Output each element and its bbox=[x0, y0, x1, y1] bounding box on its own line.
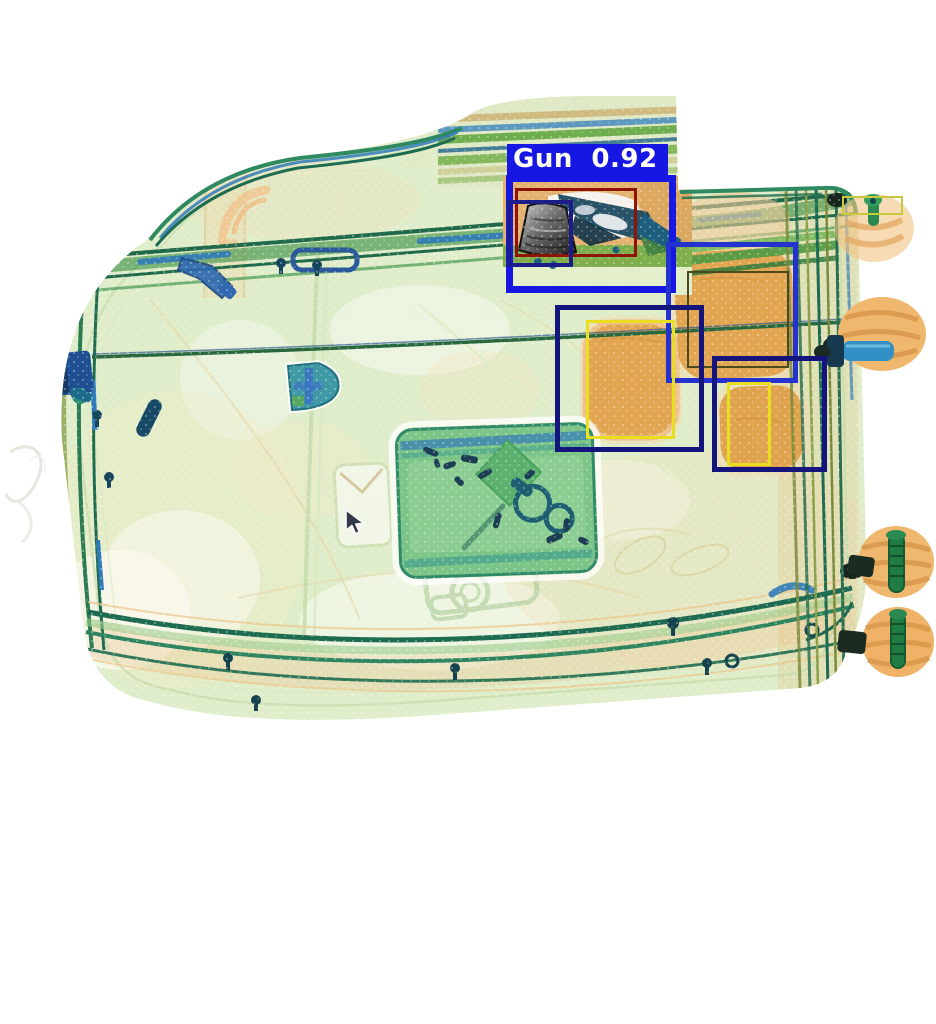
speckle-texture bbox=[40, 80, 880, 740]
detection-label: Gun 0.92 bbox=[507, 144, 668, 175]
arrow-cursor bbox=[344, 508, 366, 537]
screenshot-root: Gun 0.92 bbox=[0, 0, 936, 1024]
xray-scan-image bbox=[0, 0, 936, 1024]
ghost-scribbles bbox=[6, 447, 45, 542]
wheel-top-right bbox=[834, 194, 914, 262]
